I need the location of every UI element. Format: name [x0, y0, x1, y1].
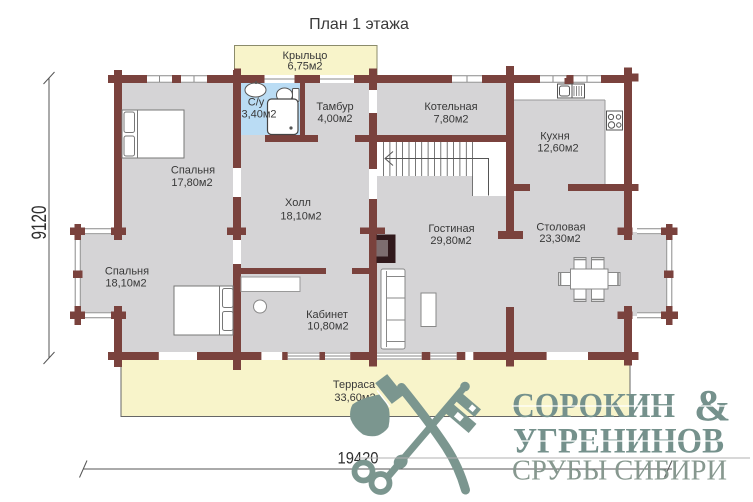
svg-text:Кабинет: Кабинет [306, 309, 348, 321]
svg-text:Тамбур: Тамбур [316, 101, 353, 113]
svg-text:СРУБЫ СИБИРИ: СРУБЫ СИБИРИ [512, 455, 727, 487]
svg-text:3,40м2: 3,40м2 [241, 109, 276, 121]
svg-text:Котельная: Котельная [424, 101, 477, 113]
svg-text:Спальня: Спальня [105, 266, 149, 278]
svg-text:23,30м2: 23,30м2 [539, 233, 580, 245]
svg-text:Терраса: Терраса [333, 379, 376, 391]
svg-text:Столовая: Столовая [536, 222, 585, 234]
svg-text:18,10м2: 18,10м2 [105, 278, 146, 290]
svg-text:Холл: Холл [285, 197, 311, 209]
svg-text:С/у: С/у [248, 97, 265, 109]
svg-text:Гостиная: Гостиная [428, 223, 474, 235]
svg-text:17,80м2: 17,80м2 [171, 177, 212, 189]
svg-text:Спальня: Спальня [171, 165, 215, 177]
svg-text:12,60м2: 12,60м2 [537, 143, 578, 155]
svg-text:6,75м2: 6,75м2 [287, 61, 322, 73]
svg-text:7,80м2: 7,80м2 [433, 114, 468, 126]
svg-text:10,80м2: 10,80м2 [307, 321, 348, 333]
svg-text:Кухня: Кухня [540, 131, 569, 143]
svg-text:План 1 этажа: План 1 этажа [309, 16, 409, 33]
svg-text:4,00м2: 4,00м2 [317, 113, 352, 125]
svg-text:18,10м2: 18,10м2 [280, 211, 321, 223]
svg-text:9120: 9120 [27, 205, 51, 239]
svg-text:29,80м2: 29,80м2 [430, 235, 471, 247]
